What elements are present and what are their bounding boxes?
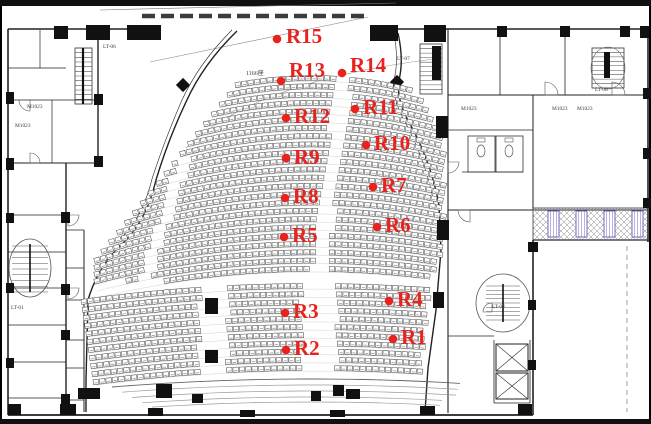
measurement-label: R8: [293, 184, 319, 208]
measurement-label: R14: [350, 53, 387, 77]
wall-pier: [61, 330, 70, 340]
room-label: M1023: [461, 106, 477, 112]
measurement-point-R7: R7: [369, 173, 407, 197]
measurement-label: R12: [294, 104, 330, 128]
wall-pier: [6, 158, 14, 170]
measurement-label: R10: [374, 131, 410, 155]
wall-pier: [54, 26, 68, 39]
wall-pier: [433, 292, 444, 308]
wall-pier: [61, 394, 70, 404]
measurement-dot: [273, 35, 282, 44]
measurement-dot: [282, 346, 291, 355]
wall-pier: [330, 410, 345, 417]
wall-pier: [6, 213, 14, 223]
wall-pier: [205, 298, 218, 314]
door-arc: [30, 153, 40, 163]
bottom-border-bar: [0, 419, 651, 424]
measurement-dot: [281, 194, 290, 203]
wall-pier: [192, 394, 203, 403]
measurement-dot: [282, 114, 291, 123]
measurement-dot: [281, 309, 290, 318]
wall-pier: [311, 391, 321, 401]
room-label: M1023: [27, 104, 43, 110]
door-arc: [458, 210, 470, 222]
room-label: LT-07: [397, 56, 410, 62]
wall-pier: [61, 212, 70, 223]
wall-pier: [497, 26, 507, 37]
wall-pier: [333, 385, 344, 396]
wall-diamond-pier: [176, 78, 190, 92]
wall-pier: [78, 388, 100, 399]
toilet-tank: [505, 138, 513, 142]
measurement-point-R9: R9: [282, 145, 320, 169]
wall-pier: [620, 26, 630, 37]
wall-pier: [86, 25, 110, 40]
wall-pier: [8, 404, 21, 415]
measurement-dot: [282, 154, 291, 163]
measurement-label: R4: [397, 287, 423, 311]
wall-pier: [370, 25, 398, 41]
wall-pier: [61, 284, 70, 295]
measurement-label: R11: [363, 95, 398, 119]
toilet-stall: [496, 136, 523, 172]
room-label: LT-01: [11, 305, 24, 311]
door-arc: [612, 82, 625, 95]
measurement-label: R7: [381, 173, 407, 197]
measurement-label: R1: [401, 325, 427, 349]
wall-pier: [94, 94, 103, 105]
door-arc: [545, 82, 558, 95]
wall-pier: [424, 25, 446, 42]
room-label: M1023: [15, 123, 31, 129]
wall-pier: [205, 350, 218, 363]
measurement-point-R13: R13: [277, 58, 325, 85]
toilet-fixture: [477, 145, 485, 157]
stage-front-step-arc: [132, 391, 456, 398]
wall-pier: [643, 198, 651, 208]
wall-pier: [420, 406, 435, 415]
toilet-fixture: [505, 145, 513, 157]
theater-floor-plan: LT-06LT-07LT-08LT-01LT-02M1023M1023M1023…: [0, 0, 651, 424]
wall-pier: [156, 384, 172, 398]
seat-count-label: 1166座: [246, 69, 264, 77]
wall-pier: [432, 46, 441, 80]
wall-pier: [127, 25, 161, 40]
measurement-label: R13: [289, 58, 325, 82]
measurement-dot: [277, 77, 286, 86]
measurement-label: R6: [385, 213, 411, 237]
measurement-dot: [369, 183, 378, 192]
room-label: LT-02: [492, 304, 505, 310]
measurement-label: R2: [294, 336, 320, 360]
measurement-label: R3: [293, 299, 319, 323]
wall-pier: [60, 404, 76, 415]
measurement-label: R15: [286, 24, 322, 48]
screenshot-root: LT-06LT-07LT-08LT-01LT-02M1023M1023M1023…: [0, 0, 651, 424]
wall-pier: [643, 148, 651, 159]
wall-pier: [528, 242, 538, 252]
wall-pier: [6, 283, 14, 293]
wall-pier: [643, 88, 651, 99]
measurement-label: R9: [294, 145, 320, 169]
measurement-point-R12: R12: [282, 104, 330, 128]
wall-pier: [436, 116, 448, 138]
measurement-point-R14: R14: [338, 53, 387, 77]
measurement-dot: [338, 69, 347, 78]
measurement-dot: [373, 223, 382, 232]
toilet-stall: [468, 136, 495, 172]
wall-pier: [604, 52, 610, 78]
door-arc: [448, 162, 459, 173]
room-label: LT-08: [595, 87, 608, 93]
wall-pier: [148, 408, 163, 416]
measurement-point-R15: R15: [273, 24, 322, 48]
wall-pier: [528, 360, 536, 370]
wall-pier: [640, 26, 649, 38]
toilet-tank: [477, 138, 485, 142]
measurement-label: R5: [292, 223, 318, 247]
wall-pier: [94, 156, 103, 167]
wall-pier: [6, 358, 14, 368]
room-label: LT-06: [103, 44, 116, 50]
top-border-bar: [0, 0, 651, 6]
wall-pier: [346, 389, 360, 399]
wall-pier: [560, 26, 570, 37]
wall-pier: [6, 92, 14, 104]
measurement-dot: [280, 233, 289, 242]
balcony-edge-line: [150, 17, 368, 62]
measurement-dot: [389, 335, 398, 344]
measurement-dot: [385, 297, 394, 306]
room-label: M1023: [552, 106, 568, 112]
wall-pier: [528, 300, 536, 310]
measurement-dot: [362, 141, 371, 150]
measurement-dot: [351, 105, 360, 114]
room-label: M1023: [577, 106, 593, 112]
wall-pier: [240, 410, 255, 417]
measurement-point-R2: R2: [282, 336, 320, 360]
wall-pier: [518, 404, 532, 415]
wall-pier: [437, 220, 449, 240]
